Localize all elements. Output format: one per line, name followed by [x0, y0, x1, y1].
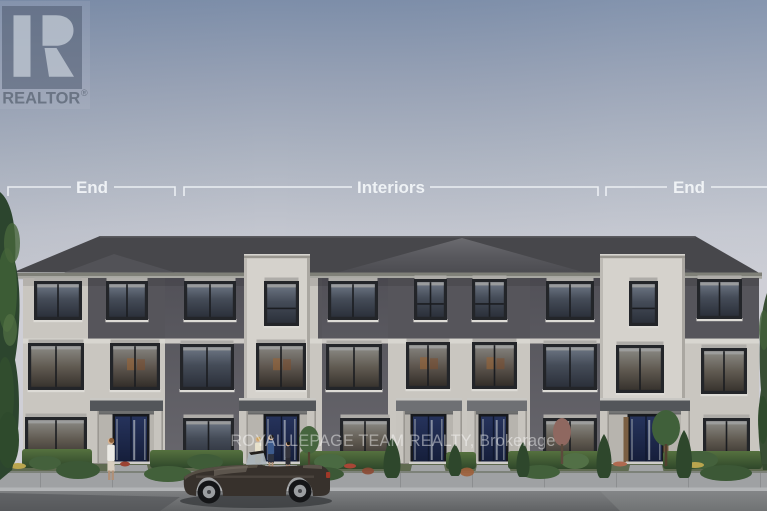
svg-text:Interiors: Interiors	[357, 178, 425, 197]
svg-text:End: End	[76, 178, 108, 197]
svg-text:®: ®	[81, 88, 88, 98]
svg-text:REALTOR: REALTOR	[2, 90, 80, 108]
svg-text:End: End	[673, 178, 705, 197]
svg-text:ROYAL LEPAGE TEAM REALTY, Brok: ROYAL LEPAGE TEAM REALTY, Brokerage	[230, 432, 555, 450]
